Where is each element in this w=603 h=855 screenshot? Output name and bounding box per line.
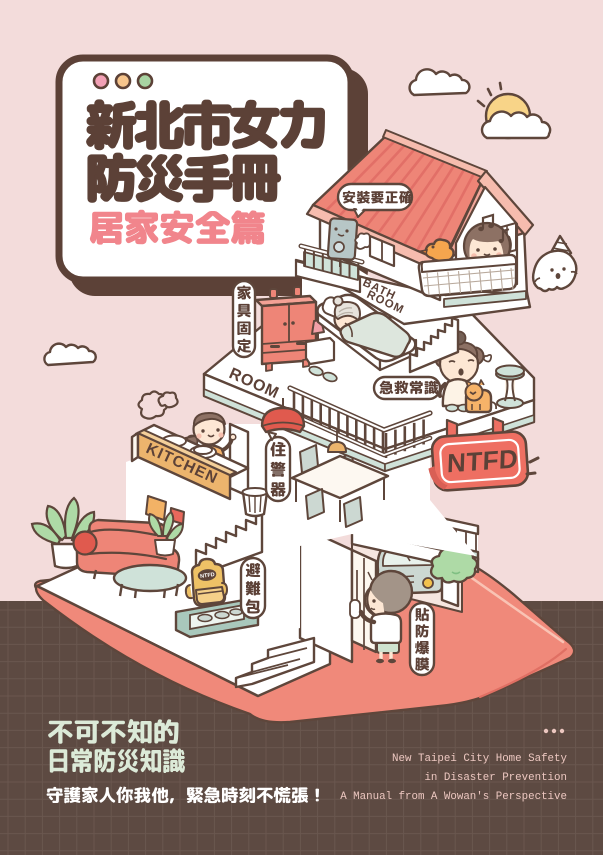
svg-text:New Taipei City Home Safety: New Taipei City Home Safety bbox=[392, 753, 567, 765]
svg-text:A Manual from A Wowan's Perspe: A Manual from A Wowan's Perspective bbox=[340, 791, 567, 803]
svg-text:NTFD: NTFD bbox=[447, 443, 519, 478]
svg-text:in Disaster Prevention: in Disaster Prevention bbox=[424, 772, 567, 784]
